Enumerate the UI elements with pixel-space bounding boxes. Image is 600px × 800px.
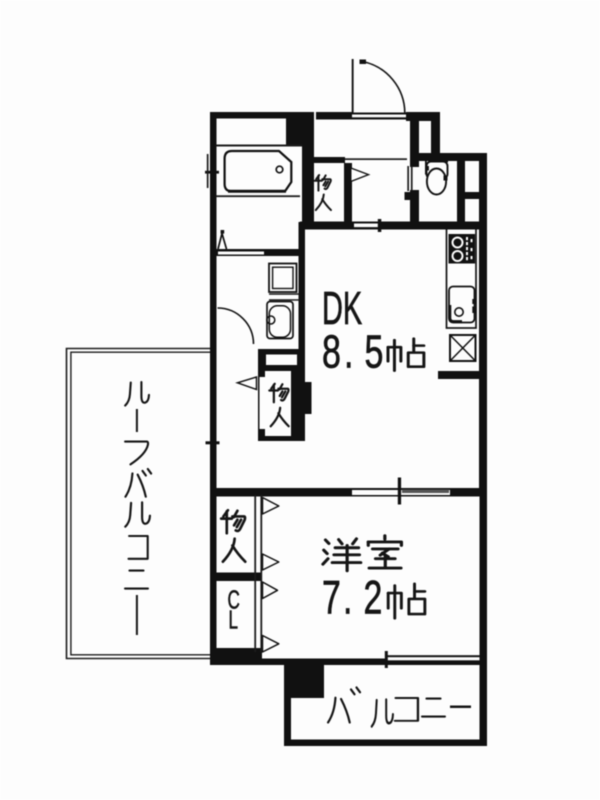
- svg-text:8: 8: [322, 325, 341, 377]
- svg-text:7: 7: [322, 571, 341, 624]
- svg-text:2: 2: [364, 571, 383, 624]
- svg-text:.: .: [344, 325, 353, 377]
- svg-text:5: 5: [365, 325, 384, 377]
- svg-text:L: L: [229, 605, 239, 635]
- svg-text:.: .: [343, 571, 352, 624]
